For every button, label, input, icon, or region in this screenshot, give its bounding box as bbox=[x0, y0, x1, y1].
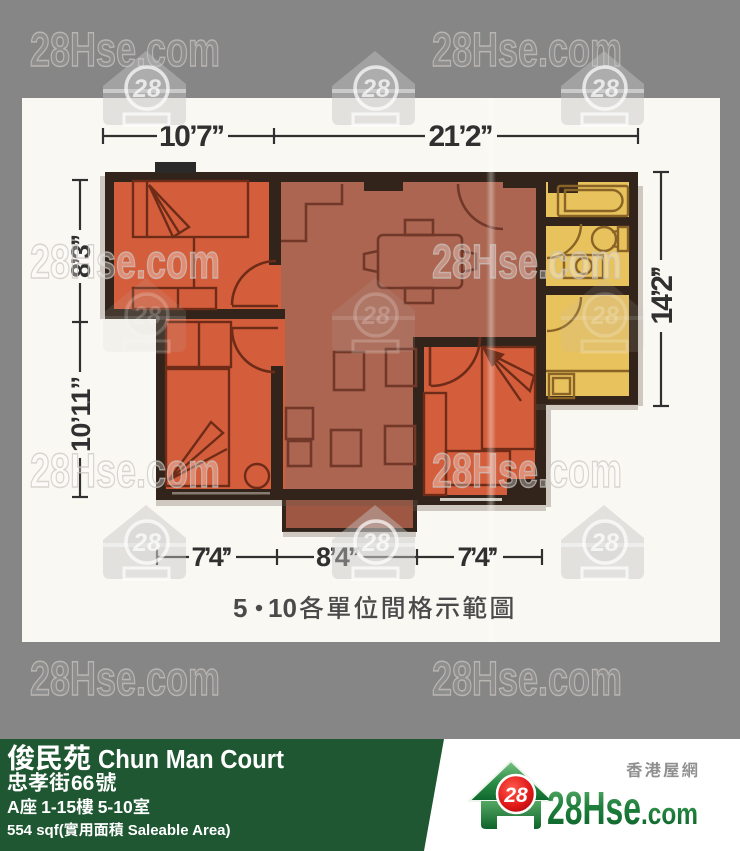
svg-text:66: 66 bbox=[71, 772, 94, 795]
svg-text:28Hse: 28Hse bbox=[547, 782, 641, 834]
svg-text:28: 28 bbox=[132, 529, 161, 557]
svg-text:10: 10 bbox=[268, 593, 297, 623]
svg-text:5: 5 bbox=[233, 593, 247, 623]
svg-text:A: A bbox=[7, 797, 20, 817]
svg-text:7’4’’: 7’4’’ bbox=[458, 542, 499, 572]
svg-text:1-15: 1-15 bbox=[41, 797, 76, 817]
svg-text:5-10: 5-10 bbox=[98, 797, 133, 817]
svg-text:28: 28 bbox=[590, 302, 619, 330]
svg-text:28: 28 bbox=[503, 784, 528, 807]
svg-text:28Hse.com: 28Hse.com bbox=[30, 653, 220, 706]
svg-text:28Hse.com: 28Hse.com bbox=[30, 445, 220, 498]
svg-text:10’11’’: 10’11’’ bbox=[66, 376, 96, 452]
svg-text:28: 28 bbox=[361, 302, 390, 330]
svg-text:554 sqf(: 554 sqf( bbox=[7, 822, 64, 839]
svg-text:28Hse.com: 28Hse.com bbox=[432, 445, 622, 498]
svg-text:28: 28 bbox=[361, 75, 390, 103]
svg-text:.com: .com bbox=[641, 796, 698, 831]
svg-text:Chun Man Court: Chun Man Court bbox=[98, 746, 284, 774]
svg-text:28Hse.com: 28Hse.com bbox=[30, 236, 220, 289]
svg-text:14’2’’: 14’2’’ bbox=[646, 266, 679, 325]
svg-text:7’4’’: 7’4’’ bbox=[192, 542, 233, 572]
svg-text:28: 28 bbox=[590, 529, 619, 557]
svg-text:28: 28 bbox=[361, 529, 390, 557]
svg-text:28Hse.com: 28Hse.com bbox=[432, 653, 622, 706]
svg-text:28: 28 bbox=[590, 75, 619, 103]
svg-text:28: 28 bbox=[132, 302, 161, 330]
svg-text:28Hse.com: 28Hse.com bbox=[432, 236, 622, 289]
svg-text:Saleable Area): Saleable Area) bbox=[128, 822, 231, 839]
svg-text:28: 28 bbox=[132, 75, 161, 103]
svg-text:21’2’’: 21’2’’ bbox=[429, 120, 494, 153]
